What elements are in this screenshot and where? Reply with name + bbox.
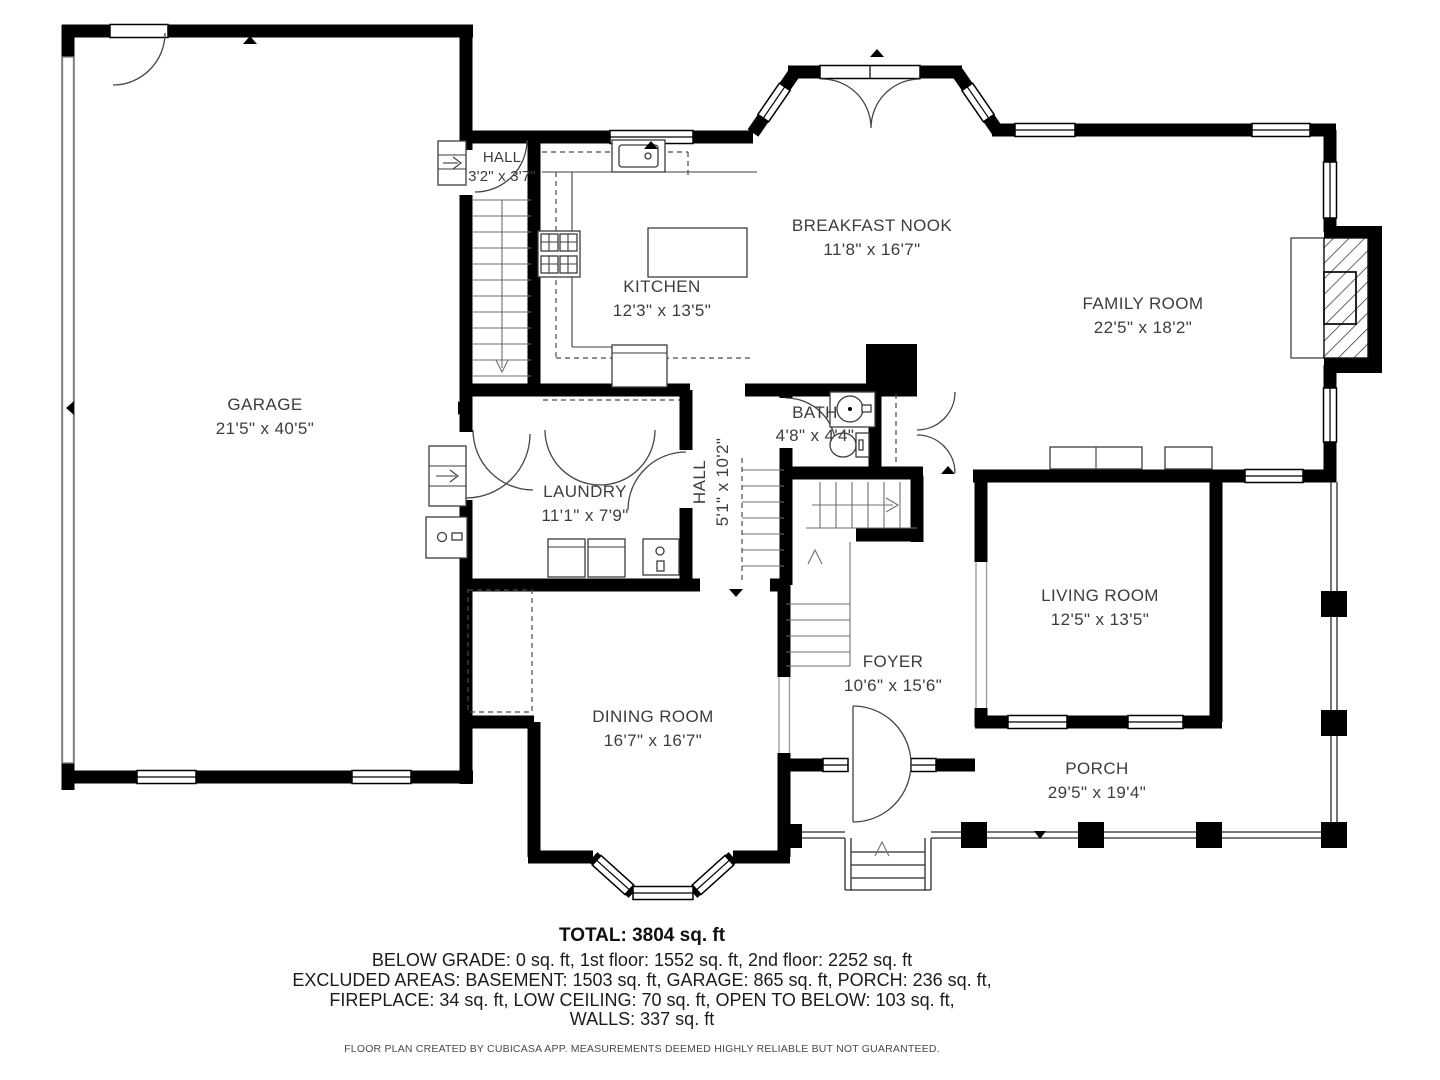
hall-steps — [438, 141, 466, 185]
room-name: FAMILY ROOM — [1083, 294, 1204, 313]
fireplace-cabinet — [1291, 238, 1324, 358]
summary-line: EXCLUDED AREAS: BASEMENT: 1503 sq. ft, G… — [292, 970, 991, 990]
walls — [62, 25, 1336, 893]
fireplace — [1291, 226, 1382, 373]
room-label-dining-room: DINING ROOM 16'7" x 16'7" — [592, 707, 714, 750]
stairs-basement — [742, 458, 784, 583]
kitchen-island — [648, 228, 747, 277]
summary-line: WALLS: 337 sq. ft — [570, 1009, 714, 1029]
closet-double-doors — [917, 392, 955, 473]
garage-entry-door — [110, 25, 168, 86]
breakfast-patio-doors — [820, 66, 920, 129]
room-dims: 29'5" x 19'4" — [1048, 783, 1146, 802]
room-name: LIVING ROOM — [1041, 586, 1159, 605]
window — [1008, 716, 1067, 729]
firebox — [1324, 272, 1356, 324]
room-dims: 12'5" x 13'5" — [1051, 610, 1149, 629]
chimney — [866, 344, 917, 390]
room-label-foyer: FOYER 10'6" x 15'6" — [844, 652, 942, 695]
stove — [538, 231, 580, 277]
window — [1015, 124, 1075, 137]
room-label-laundry: LAUNDRY 11'1" x 7'9" — [541, 482, 628, 525]
room-dims: 12'3" x 13'5" — [613, 301, 711, 320]
summary-line: FIREPLACE: 34 sq. ft, LOW CEILING: 70 sq… — [329, 990, 954, 1010]
room-label-garage: GARAGE 21'5" x 40'5" — [216, 395, 314, 438]
room-dims: 11'8" x 16'7" — [823, 240, 920, 259]
room-name: HALL — [690, 460, 709, 504]
laundry-sink — [643, 539, 679, 575]
opening-markers — [66, 36, 1046, 839]
room-label-porch: PORCH 29'5" x 19'4" — [1048, 759, 1146, 802]
garage-steps — [429, 446, 466, 506]
room-name: BREAKFAST NOOK — [792, 216, 952, 235]
room-dims: 22'5" x 18'2" — [1094, 318, 1192, 337]
room-label-breakfast-nook: BREAKFAST NOOK 11'8" x 16'7" — [792, 216, 952, 259]
room-dims: 21'5" x 40'5" — [216, 419, 314, 438]
room-name: KITCHEN — [623, 277, 700, 296]
disclaimer: FLOOR PLAN CREATED BY CUBICASA APP. MEAS… — [344, 1043, 940, 1055]
window-bay — [692, 855, 733, 894]
low-ceiling-area — [468, 590, 532, 712]
summary-line: BELOW GRADE: 0 sq. ft, 1st floor: 1552 s… — [372, 950, 912, 970]
room-name: DINING ROOM — [592, 707, 714, 726]
room-dims: 4'8" x 4'4" — [776, 426, 855, 445]
room-label-kitchen: KITCHEN 12'3" x 13'5" — [613, 277, 711, 320]
front-door — [853, 706, 911, 822]
window-bay — [962, 83, 994, 122]
family-room-furniture — [1050, 447, 1212, 469]
opening-foyer-living — [975, 562, 988, 708]
window-bay — [758, 83, 790, 122]
room-name: LAUNDRY — [543, 482, 627, 501]
entry-steps — [845, 838, 931, 890]
laundry-hall-door — [628, 452, 686, 510]
washer — [548, 539, 585, 577]
window — [1252, 124, 1310, 137]
opening-dining-foyer — [778, 677, 791, 753]
floor-plan-page: GARAGE 21'5" x 40'5" HALL 3'2" x 3'7" KI… — [0, 0, 1440, 1080]
window — [1245, 470, 1303, 483]
stairs-main-up — [786, 482, 917, 666]
room-name: HALL — [483, 149, 521, 166]
kitchen-peninsula — [612, 345, 667, 387]
window — [352, 771, 411, 784]
room-label-family-room: FAMILY ROOM 22'5" x 18'2" — [1083, 294, 1204, 337]
window — [137, 771, 196, 784]
stairs-hall-down — [473, 200, 531, 376]
room-dims: 3'2" x 3'7" — [468, 168, 536, 185]
room-label-living-room: LIVING ROOM 12'5" x 13'5" — [1041, 586, 1159, 629]
room-dims: 11'1" x 7'9" — [541, 506, 628, 525]
room-name: GARAGE — [227, 395, 302, 414]
room-dims: 16'7" x 16'7" — [604, 731, 702, 750]
window-bay — [592, 855, 633, 894]
summary-block: TOTAL: 3804 sq. ft BELOW GRADE: 0 sq. ft… — [292, 925, 991, 1055]
window-sidelite — [823, 759, 848, 772]
kitchen-sink — [612, 140, 665, 172]
room-name: BATH — [792, 403, 838, 422]
window — [1128, 716, 1183, 729]
window — [1324, 162, 1337, 218]
room-label-hall-corridor: HALL 5'1" x 10'2" — [690, 438, 732, 527]
floor-plan-canvas: GARAGE 21'5" x 40'5" HALL 3'2" x 3'7" KI… — [0, 0, 1440, 1080]
window — [1324, 388, 1337, 442]
window-sidelite — [911, 759, 936, 772]
room-name: PORCH — [1065, 759, 1128, 778]
dryer — [588, 539, 625, 577]
room-dims: 5'1" x 10'2" — [713, 438, 732, 527]
summary-total: TOTAL: 3804 sq. ft — [559, 925, 726, 946]
room-dims: 10'6" x 15'6" — [844, 676, 942, 695]
window — [633, 887, 693, 900]
room-name: FOYER — [863, 652, 924, 671]
utility-sink — [426, 517, 467, 558]
